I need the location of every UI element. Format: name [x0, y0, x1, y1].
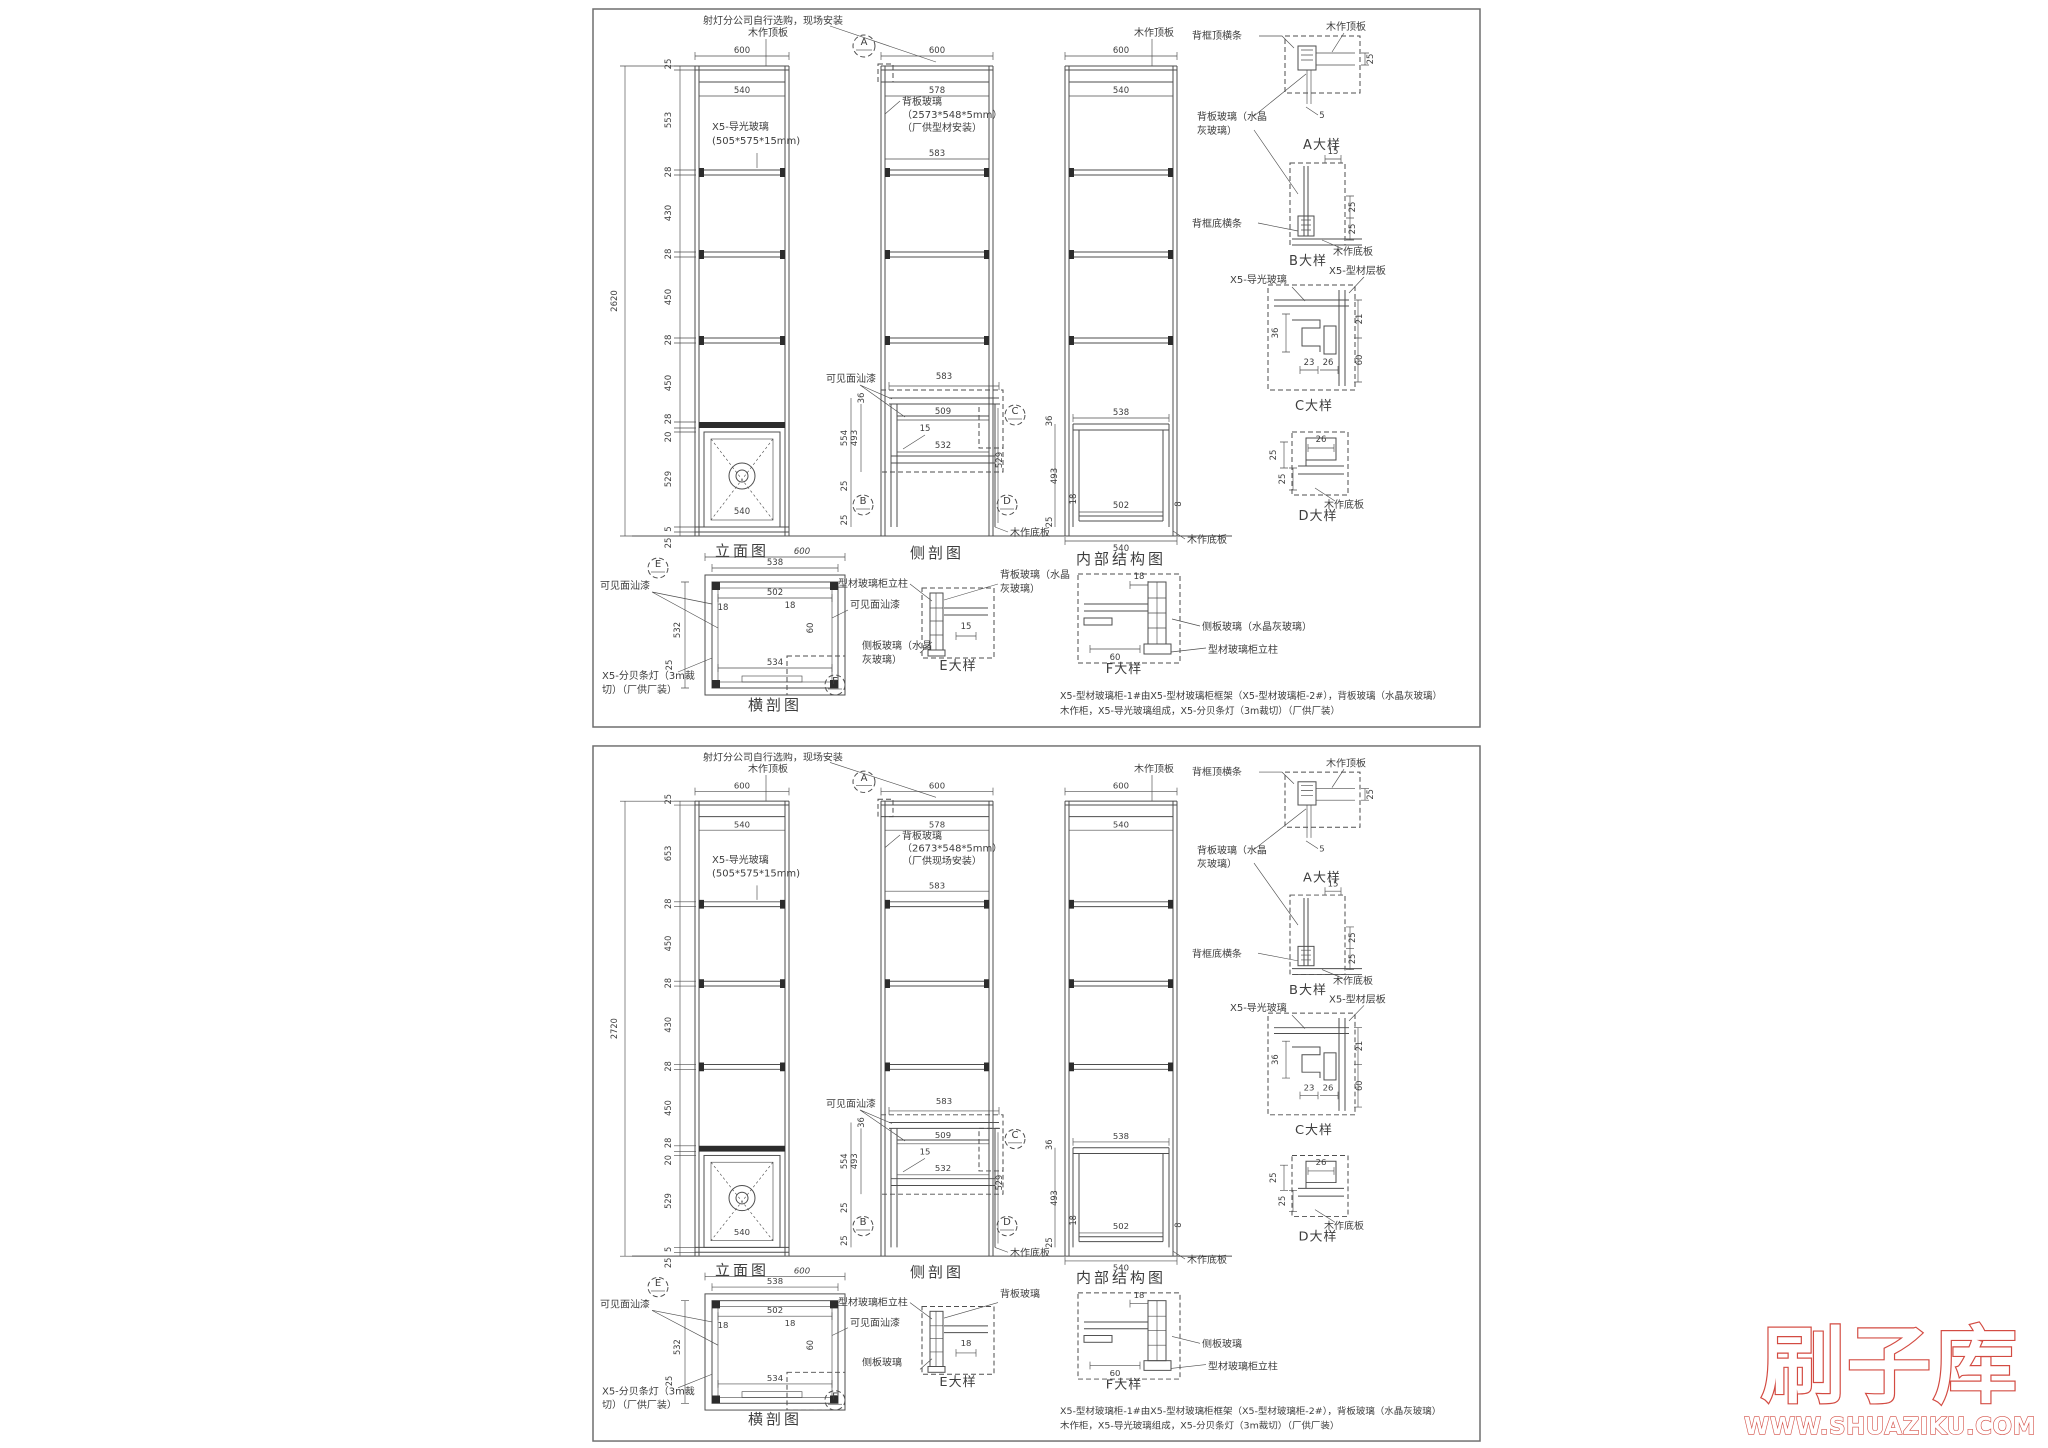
dim: 18 [718, 1320, 729, 1330]
rail-label: 背框顶横条 [1192, 765, 1242, 778]
dim: 493 [1049, 1190, 1059, 1206]
back-glass-size: （2573*548*5mm） [902, 109, 1002, 121]
scanned-drawing-page: 射灯分公司自行选购，现场安装 2620 25 553 28 430 28 450… [0, 0, 2048, 1448]
dim: 25 [1268, 1172, 1278, 1182]
dim: 554 [839, 1153, 849, 1169]
dim: 430 [663, 1017, 673, 1033]
dim: 529 [663, 1193, 673, 1209]
dim: 8 [1174, 501, 1184, 506]
cross-section-view: 600 538 502 18 18 532 60 534 25 E F 可见面汕… [600, 1266, 900, 1429]
post-label: 型材玻璃柜立柱 [838, 1296, 908, 1309]
dim: 502 [1113, 501, 1129, 511]
glass-label: X5-导光玻璃 [712, 853, 769, 866]
dim: 23 [1304, 1083, 1315, 1093]
detail-name: C大样 [1295, 1123, 1333, 1138]
marker-a: A [861, 773, 868, 784]
glass-label: X5-导光玻璃 [712, 120, 769, 133]
drawing-sheet-2: 射灯分公司自行选购，现场安装 2720 25 653 28 450 28 430… [592, 745, 1481, 1442]
detail-c: X5-导光玻璃 36 23 26 21 60 C大样 [1230, 1001, 1364, 1138]
view-title: 内部结构图 [1076, 1270, 1166, 1287]
marker-d: D [1003, 1217, 1011, 1228]
dim: 538 [767, 558, 783, 568]
dim: 26 [1316, 1157, 1327, 1167]
back-glass-label: 背板玻璃 [902, 95, 942, 108]
back-glass-size: （2673*548*5mm） [902, 843, 1002, 855]
dim: 60 [1354, 1081, 1364, 1091]
dim-width: 600 [734, 781, 750, 791]
marker-a: A [861, 37, 868, 48]
dim-inner-top: 578 [929, 86, 945, 96]
detail-a: 背框顶横条 木作顶板 25 5 背板玻璃（水晶 灰玻璃） A大样 [1192, 20, 1376, 194]
glass-size-label: (505*575*15mm) [712, 869, 800, 880]
lamp-label-2: 切）（厂供厂装） [602, 1398, 677, 1411]
dim: 15 [961, 622, 972, 632]
dim: 25 [664, 59, 674, 70]
dim: 554 [840, 430, 850, 446]
view-title: 横剖图 [748, 696, 802, 714]
dim: 532 [672, 1339, 682, 1355]
dim: 60 [805, 1340, 815, 1350]
dim: 18 [785, 601, 796, 611]
dim-width: 600 [794, 547, 810, 557]
dim: 5 [664, 526, 674, 531]
side-section-view: A 背板玻璃 （2573*548*5mm） （厂供型材安装） 600 578 5… [826, 35, 1050, 562]
back-glass-label-2: 灰玻璃） [1197, 124, 1237, 137]
dim: 450 [663, 1100, 673, 1116]
paint-label-left: 可见面汕漆 [600, 579, 650, 592]
dim: 25 [1044, 1237, 1054, 1247]
dim: 5 [1319, 111, 1324, 121]
dim: 493 [850, 430, 860, 446]
dim: 36 [1271, 328, 1281, 339]
dim: 28 [664, 414, 674, 425]
dim: 25 [840, 481, 850, 492]
post-label: 型材玻璃柜立柱 [838, 577, 908, 590]
marker-c: C [1012, 406, 1019, 417]
dim-inner-width: 540 [1113, 86, 1129, 96]
dim: 18 [1134, 1290, 1145, 1300]
dim: 28 [663, 978, 673, 988]
detail-d: 26 25 25 木作底板 D大样 [1268, 1155, 1364, 1244]
dim: 25 [1045, 517, 1055, 528]
dim-inner-width: 540 [1113, 819, 1129, 829]
view-title: 侧剖图 [910, 544, 964, 562]
back-glass-note: （厂供现场安装） [902, 854, 982, 867]
marker-b: B [860, 496, 867, 507]
back-glass-note: （厂供型材安装） [902, 121, 982, 134]
dim: 493 [1050, 468, 1060, 484]
dim: 553 [664, 112, 674, 128]
dim: 18 [1068, 1215, 1078, 1225]
back-glass-label-2: 灰玻璃） [1197, 857, 1237, 870]
dim: 26 [1323, 1083, 1334, 1093]
top-panel-label: 木作顶板 [748, 762, 788, 775]
top-note-text: 射灯分公司自行选购，现场安装 [703, 751, 843, 764]
dim: 21 [1354, 1041, 1364, 1051]
detail-f: 18 60 侧板玻璃（水晶灰玻璃） 型材玻璃柜立柱 F大样 [1078, 572, 1312, 677]
dim: 25 [663, 794, 673, 804]
dim-inner-width: 540 [734, 819, 750, 829]
watermark: 刷子库 WWW.SHUAZIKU.COM [1733, 1303, 2048, 1448]
detail-name: B大样 [1289, 254, 1327, 269]
glass-label: X5-导光玻璃 [1230, 1001, 1287, 1014]
dim-width: 600 [734, 46, 750, 56]
dim-overall-height: 2720 [609, 1018, 619, 1039]
view-title: 立面图 [715, 1263, 769, 1280]
caption-line-1: X5-型材玻璃柜-1#由X5-型材玻璃柜框架（X5-型材玻璃柜-2#），背板玻璃… [1060, 1405, 1441, 1417]
glass-size-label: (505*575*15mm) [712, 136, 800, 147]
paint-label-right: 可见面汕漆 [850, 1316, 900, 1329]
dim-bench-top: 583 [936, 1096, 952, 1106]
dim: 60 [1110, 1368, 1121, 1378]
dim: 36 [1270, 1054, 1280, 1064]
dim: 538 [1113, 408, 1129, 418]
dim: 28 [664, 249, 674, 260]
dim: 26 [1323, 358, 1334, 368]
dim: 15 [1328, 147, 1339, 157]
dim: 534 [767, 1373, 783, 1383]
back-glass-label: 背板玻璃 [902, 829, 942, 842]
marker-d: D [1003, 496, 1011, 507]
detail-name: B大样 [1289, 983, 1327, 998]
dim: 36 [1045, 416, 1055, 427]
dim: 36 [1044, 1140, 1054, 1150]
lamp-label-1: X5-分贝条灯（3m裁 [602, 1385, 695, 1398]
dim-inner-top: 578 [929, 819, 945, 829]
dim: 23 [1304, 358, 1315, 368]
top-panel-label: 木作顶板 [1134, 26, 1174, 39]
view-title: 侧剖图 [910, 1265, 964, 1282]
internal-structure-view: 600 木作顶板 540 538 502 540 8 36 493 18 25 … [1044, 762, 1227, 1287]
dim: 28 [663, 1061, 673, 1071]
bottom-panel-label: 木作底板 [1187, 533, 1227, 546]
detail-name: D大样 [1298, 509, 1337, 524]
side-glass-label: 侧板玻璃 [1202, 1337, 1242, 1350]
dim: 5 [1319, 844, 1324, 854]
dim: 25 [664, 1376, 674, 1386]
lamp-label-2: 切）（厂供厂装） [602, 683, 677, 696]
dim: 21 [1355, 314, 1365, 325]
dim: 653 [663, 846, 673, 862]
dim-width: 600 [1113, 46, 1129, 56]
detail-e: 型材玻璃柜立柱 背板玻璃 侧板玻璃 18 E大样 [838, 1287, 1040, 1390]
dim: 28 [663, 899, 673, 909]
dim-lamp-width: 540 [734, 1227, 750, 1237]
marker-e: E [655, 1278, 661, 1289]
internal-structure-view: 600 木作顶板 540 538 502 540 8 36 493 18 25 … [1045, 26, 1227, 568]
dim: 60 [806, 623, 816, 634]
dim: 20 [664, 432, 674, 443]
dim-glass-t: 15 [920, 1147, 931, 1157]
watermark-site-text: WWW.SHUAZIKU.COM [1744, 1414, 2036, 1440]
view-title: 横剖图 [748, 1412, 802, 1429]
paint-label-right: 可见面汕漆 [850, 598, 900, 611]
dim: 450 [664, 375, 674, 391]
top-panel-label: 木作顶板 [748, 26, 788, 39]
dim-bench-mid: 509 [935, 407, 951, 417]
marker-f: F [832, 1392, 838, 1403]
dim-inner-width: 540 [734, 86, 750, 96]
lamp-label-1: X5-分贝条灯（3m裁 [602, 669, 695, 682]
dim: 502 [767, 588, 783, 598]
top-panel-label: 木作顶板 [1134, 762, 1174, 775]
dim: 28 [664, 335, 674, 346]
dim: 25 [1347, 932, 1357, 942]
side-glass-label: 侧板玻璃（水晶灰玻璃） [1202, 620, 1312, 633]
dim: 25 [840, 515, 850, 526]
side-glass-label-1: 侧板玻璃 [862, 1356, 902, 1369]
dim: 18 [1069, 494, 1079, 505]
dim: 538 [1113, 1131, 1129, 1141]
bottom-panel-label: 木作底板 [1187, 1253, 1227, 1266]
dim: 18 [718, 603, 729, 613]
bottom-panel-label: 木作底板 [1010, 526, 1050, 539]
caption: X5-型材玻璃柜-1#由X5-型材玻璃柜框架（X5-型材玻璃柜-2#），背板玻璃… [1060, 1405, 1441, 1431]
dim: 25 [1348, 224, 1358, 235]
caption: X5-型材玻璃柜-1#由X5-型材玻璃柜框架（X5-型材玻璃柜-2#），背板玻璃… [1060, 690, 1442, 717]
panel-label: 木作底板 [1333, 245, 1373, 258]
glass-label: X5-导光玻璃 [1230, 273, 1287, 286]
drawing-sheet-1: 射灯分公司自行选购，现场安装 2620 25 553 28 430 28 450… [592, 8, 1481, 728]
detail-name: F大样 [1106, 662, 1142, 677]
rail-label: 背框顶横条 [1192, 29, 1242, 42]
paint-label: 可见面汕漆 [826, 372, 876, 385]
dim: 529 [664, 471, 674, 487]
caption-line-2: 木作柜，X5-导光玻璃组成，X5-分贝条灯（3m裁切）（厂供厂装） [1060, 705, 1340, 717]
dim: 25 [1366, 54, 1376, 65]
dim: 8 [1173, 1223, 1183, 1228]
rail-label: 背框底横条 [1192, 217, 1242, 230]
detail-b: 15 25 25 背框底横条 木作底板 B大样 X5-型材层板 [1192, 878, 1386, 1020]
side-glass-label-1: 侧板玻璃（水晶 [862, 639, 932, 652]
side-glass-label-2: 灰玻璃） [862, 653, 902, 666]
dim-lamp-width: 540 [734, 507, 750, 517]
back-glass-label-1: 背板玻璃（水晶 [1197, 844, 1267, 857]
sheet-border [593, 746, 1480, 1441]
dim: 25 [665, 660, 675, 671]
dim: 532 [673, 622, 683, 638]
dim: 60 [1355, 355, 1365, 366]
detail-name: E大样 [939, 659, 976, 674]
dim-shelf-width: 583 [929, 149, 945, 159]
dim: 18 [785, 1318, 796, 1328]
height-dimension-chain: 2620 25 553 28 430 28 450 28 450 28 20 5… [610, 59, 696, 549]
detail-d: 26 25 25 木作底板 D大样 [1269, 432, 1364, 524]
detail-e: 型材玻璃柜立柱 背板玻璃（水晶 灰玻璃） 侧板玻璃（水晶 灰玻璃） 15 E大样 [838, 568, 1070, 674]
dim: 26 [1316, 435, 1327, 445]
dim: 529 [995, 452, 1005, 468]
paint-label: 可见面汕漆 [826, 1097, 876, 1110]
back-glass-label-1: 背板玻璃（水晶 [1000, 568, 1070, 581]
dim: 25 [664, 538, 674, 549]
marker-c: C [1012, 1130, 1019, 1141]
elevation-view: 600 木作顶板 540 X5-导光玻璃 (505*575*15mm) 540 … [695, 26, 800, 560]
marker-f: F [832, 676, 838, 687]
dim-shelf-width: 583 [929, 880, 945, 890]
sheet-border [593, 9, 1480, 727]
dim: 25 [839, 1202, 849, 1212]
dim: 538 [767, 1276, 783, 1286]
dim: 25 [663, 1258, 673, 1268]
post-label: 型材玻璃柜立柱 [1208, 643, 1278, 656]
view-title: 内部结构图 [1076, 550, 1166, 568]
back-glass-label-1: 背板玻璃 [1000, 1287, 1040, 1300]
dim: 20 [663, 1155, 673, 1165]
cross-section-view: 600 538 502 18 18 532 60 534 25 E F 可见面汕… [600, 547, 900, 714]
detail-name: D大样 [1299, 1230, 1338, 1245]
dim-overall-height: 2620 [610, 290, 620, 312]
dim-glass-t: 15 [920, 424, 931, 434]
dim: 25 [839, 1235, 849, 1245]
panel-label: 木作顶板 [1326, 20, 1366, 33]
dim: 28 [663, 1138, 673, 1148]
shelf-label: X5-型材层板 [1329, 264, 1386, 277]
height-dimension-chain: 2720 25 653 28 450 28 430 28 450 28 20 5… [609, 794, 696, 1268]
marker-e: E [655, 559, 661, 570]
detail-c: X5-导光玻璃 36 23 26 21 60 C大样 [1230, 273, 1365, 414]
dim: 18 [961, 1338, 972, 1348]
dim-width: 600 [929, 781, 945, 791]
dim: 450 [664, 289, 674, 305]
detail-name: C大样 [1295, 399, 1333, 414]
dim: 18 [1134, 572, 1145, 582]
dim: 5 [663, 1247, 673, 1252]
caption-line-1: X5-型材玻璃柜-1#由X5-型材玻璃柜框架（X5-型材玻璃柜-2#），背板玻璃… [1060, 690, 1442, 702]
dim-width: 600 [1113, 781, 1129, 791]
panel-label: 木作顶板 [1326, 756, 1366, 769]
dim: 25 [1269, 450, 1279, 461]
elevation-view: 600 木作顶板 540 X5-导光玻璃 (505*575*15mm) 540 … [695, 762, 800, 1279]
dim: 25 [1348, 202, 1358, 213]
detail-b: 15 25 25 背框底横条 木作底板 B大样 X5-型材层板 [1192, 147, 1386, 293]
shelf-label: X5-型材层板 [1329, 993, 1386, 1006]
dim: 15 [1328, 878, 1339, 888]
dim: 25 [1277, 1196, 1287, 1206]
dim: 25 [1347, 954, 1357, 964]
dim-bench-bot: 532 [935, 1163, 951, 1173]
dim: 450 [663, 936, 673, 952]
dim: 28 [664, 167, 674, 178]
dim: 36 [857, 393, 867, 404]
back-glass-label-1: 背板玻璃（水晶 [1197, 110, 1267, 123]
dim: 529 [994, 1175, 1004, 1191]
detail-f: 18 60 侧板玻璃 型材玻璃柜立柱 F大样 [1078, 1290, 1278, 1393]
detail-name: F大样 [1106, 1378, 1142, 1393]
back-glass-label-2: 灰玻璃） [1000, 582, 1040, 595]
post-label: 型材玻璃柜立柱 [1208, 1360, 1278, 1373]
dim: 36 [856, 1117, 866, 1127]
dim: 502 [1113, 1221, 1129, 1231]
dim-bench-top: 583 [936, 372, 952, 382]
dim: 493 [849, 1153, 859, 1169]
side-section-view: A 背板玻璃 （2673*548*5mm） （厂供现场安装） 600 578 5… [826, 771, 1050, 1281]
watermark-brand-text: 刷子库 [1761, 1317, 2019, 1415]
dim: 25 [1365, 789, 1375, 799]
dim-width: 600 [929, 46, 945, 56]
dim: 430 [664, 205, 674, 221]
dim-bench-mid: 509 [935, 1130, 951, 1140]
paint-label-left: 可见面汕漆 [600, 1298, 650, 1311]
dim-width: 600 [794, 1266, 810, 1276]
marker-b: B [860, 1217, 867, 1228]
rail-label: 背框底横条 [1192, 947, 1242, 960]
detail-name: E大样 [939, 1375, 976, 1390]
caption-line-2: 木作柜，X5-导光玻璃组成，X5-分贝条灯（3m裁切）（厂供厂装） [1060, 1420, 1339, 1432]
dim: 25 [1278, 474, 1288, 485]
dim: 502 [767, 1305, 783, 1315]
detail-a: 背框顶横条 木作顶板 25 5 背板玻璃（水晶 灰玻璃） A大样 [1192, 756, 1375, 925]
panel-label: 木作底板 [1333, 974, 1373, 987]
dim: 534 [767, 658, 783, 668]
top-note-text: 射灯分公司自行选购，现场安装 [703, 14, 843, 27]
dim-bench-bot: 532 [935, 441, 951, 451]
